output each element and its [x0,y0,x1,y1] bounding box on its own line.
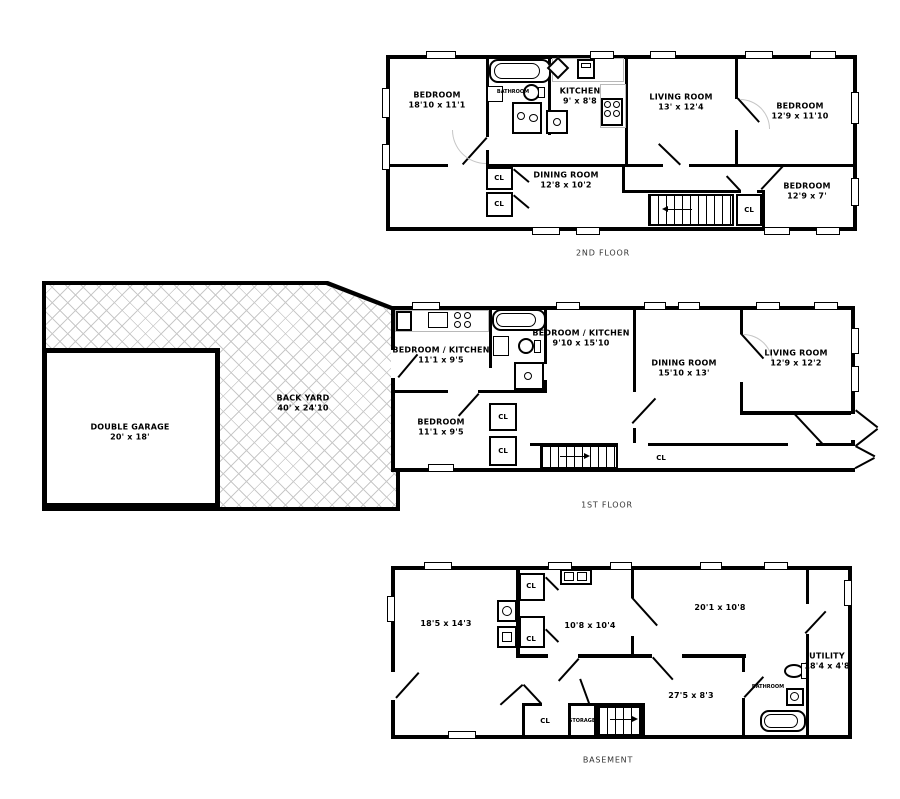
room-dims: 40' x 24'10 [277,404,330,414]
door-opening [788,443,816,446]
window [387,596,395,622]
room-dims: 9' x 8'8 [560,97,601,107]
room-dims: 15'10 x 13' [651,369,716,379]
wall [740,382,743,413]
bathtub-inner [764,714,798,728]
window [816,227,840,235]
window [426,51,456,59]
room-dims: 18'5 x 14'3 [420,619,471,629]
window [851,328,859,354]
window [810,51,836,59]
bathtub-inner [496,313,536,327]
room-dims: 11'1 x 9'5 [392,356,489,366]
floor-caption-basement: BASEMENT [583,756,633,765]
window [764,227,790,235]
window [548,562,572,570]
room-label-backyard: BACK YARD 40' x 24'10 [277,394,330,415]
room-name: LIVING ROOM [764,349,827,359]
stairs-arrow-icon [662,206,668,212]
door-opening [741,190,757,193]
wall [735,59,738,99]
room-label-kitchen-2f: KITCHEN 9' x 8'8 [560,87,601,108]
room-name: BEDROOM / KITCHEN [392,346,489,356]
room-label-rec-room: 18'5 x 14'3 [420,619,471,629]
staircase [648,194,734,226]
wall [486,150,489,164]
room-label-basement-room2: 10'8 x 10'4 [564,621,615,631]
room-label-bedroom2-2f: BEDROOM 12'9 x 11'10 [772,102,829,123]
wall [633,308,636,392]
room-label-utility: UTILITY 18'4 x 4'8 [804,652,849,673]
room-name: KITCHEN [560,87,601,97]
room-dims: 13' x 12'4 [649,103,712,113]
bathtub-inner [494,63,540,79]
floor-caption-1f: 1ST FLOOR [581,501,633,510]
room-dims: 20'1 x 10'8 [694,603,745,613]
wall [740,308,743,334]
window [644,302,666,310]
wall [762,190,765,228]
closet-label: CL [494,174,504,182]
closet-label: CL [656,454,666,462]
room-name: BEDROOM [409,91,466,101]
burner [464,312,471,319]
laundry-tub-bowl [564,572,574,581]
door-opening [448,390,478,393]
wall [742,658,745,739]
room-label-dining-2f: DINING ROOM 12'8 x 10'2 [533,171,598,192]
window [678,302,700,310]
window [851,92,859,124]
room-dims: 11'1 x 9'5 [417,428,464,438]
room-label-storage: STORAGE [569,718,596,724]
room-label-living-1f: LIVING ROOM 12'9 x 12'2 [764,349,827,370]
room-name: DINING ROOM [651,359,716,369]
shower-drain [524,372,532,380]
sink-icon [428,312,448,328]
floor-caption-2f: 2ND FLOOR [576,249,630,258]
window [382,144,390,170]
window [424,562,452,570]
window [764,562,788,570]
door-opening [448,164,486,167]
stairs-direction-line [560,456,584,457]
room-label-bathroom-2f: BATHROOM [497,89,529,95]
closet-label: CL [498,413,508,421]
window [448,731,476,739]
room-label-basement-room4: 27'5 x 8'3 [668,691,713,701]
vanity-bowl [517,112,525,120]
floor-plan-page: BEDROOM 18'10 x 11'1 BATHROOM KITCHEN 9'… [0,0,900,799]
wall [642,703,645,737]
burner [464,321,471,328]
window [756,302,780,310]
room-label-bedroom-kitchen1: BEDROOM / KITCHEN 11'1 x 9'5 [392,346,489,367]
window [428,464,454,472]
room-dims: 18'4 x 4'8 [804,662,849,672]
laundry-tub-bowl [577,572,587,581]
toilet-tank [538,87,545,98]
stairs-arrow-icon [632,716,638,722]
burner [454,321,461,328]
stairs-direction-line [610,719,632,720]
window [556,302,580,310]
wall [631,568,634,598]
room-dims: 20' x 18' [90,433,169,443]
room-label-dining-1f: DINING ROOM 15'10 x 13' [651,359,716,380]
window [382,88,390,118]
dryer-door [502,632,512,642]
window [745,51,773,59]
room-label-basement-room3: 20'1 x 10'8 [694,603,745,613]
door-opening [618,443,648,446]
window [851,178,859,206]
sink-bowl [790,692,799,701]
opening [851,414,859,440]
room-label-garage: DOUBLE GARAGE 20' x 18' [90,423,169,444]
room-name: BEDROOM [783,182,830,192]
burner [454,312,461,319]
room-dims: 12'9 x 7' [783,192,830,202]
window [576,227,600,235]
window [851,366,859,392]
door-opening [663,164,689,167]
closet-label: CL [540,717,550,725]
staircase [540,445,618,469]
room-name: BACK YARD [277,394,330,404]
room-label-bedroom3-2f: BEDROOM 12'9 x 7' [783,182,830,203]
wall [489,390,547,393]
room-name: UTILITY [804,652,849,662]
room-name: BEDROOM [772,102,829,112]
door-opening [548,654,578,658]
room-label-living-2f: LIVING ROOM 13' x 12'4 [649,93,712,114]
window [412,302,440,310]
burner [613,110,620,117]
closet-label: CL [494,200,504,208]
room-name: DOUBLE GARAGE [90,423,169,433]
window [650,51,676,59]
closet-label: CL [498,447,508,455]
sink-icon [493,336,509,356]
room-dims: 12'8 x 10'2 [533,181,598,191]
room-label-bedroom1-2f: BEDROOM 18'10 x 11'1 [409,91,466,112]
shower-drain [553,118,561,126]
wet-bar-detail [581,63,591,68]
room-dims: 12'9 x 11'10 [772,112,829,122]
window [532,227,560,235]
burner [604,101,611,108]
room-dims: 18'10 x 11'1 [409,101,466,111]
closet-box [519,616,545,648]
room-label-bathroom-b: BATHROOM [752,684,784,690]
wall [740,411,855,415]
window [844,580,852,606]
wall [522,703,525,737]
fridge-icon [396,311,412,331]
stairs-arrow-icon [584,453,590,459]
room-dims: 9'10 x 15'10 [532,339,629,349]
window [814,302,838,310]
room-name: BEDROOM [417,418,464,428]
window [610,562,632,570]
room-label-bedroom-1f: BEDROOM 11'1 x 9'5 [417,418,464,439]
room-name: LIVING ROOM [649,93,712,103]
closet-label: CL [526,582,536,590]
stairs-direction-line [668,209,692,210]
room-name: BEDROOM / KITCHEN [532,329,629,339]
room-dims: 27'5 x 8'3 [668,691,713,701]
closet-label: CL [744,206,754,214]
window [700,562,722,570]
wall [568,703,596,706]
window [590,51,614,59]
door-opening [652,654,682,658]
closet-label: CL [526,635,536,643]
room-name: DINING ROOM [533,171,598,181]
wet-bar-icon [577,59,595,79]
burner [613,101,620,108]
washer-door [502,606,512,616]
wall [735,130,738,165]
room-dims: 10'8 x 10'4 [564,621,615,631]
room-dims: 12'9 x 12'2 [764,359,827,369]
burner [604,110,611,117]
vanity-bowl [529,114,538,122]
room-label-bedroom-kitchen2: BEDROOM / KITCHEN 9'10 x 15'10 [532,329,629,350]
